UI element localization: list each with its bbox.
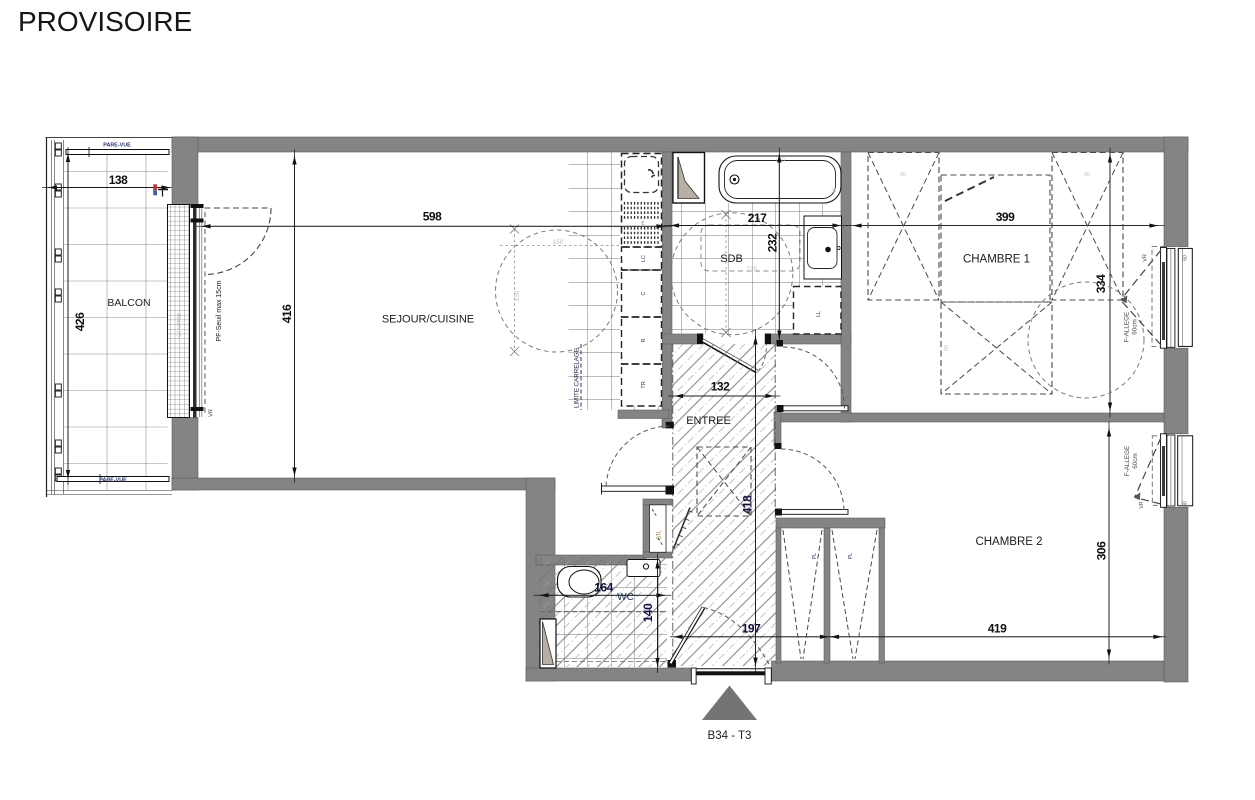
svg-text:LIMITE CARRELAGE: LIMITE CARRELAGE	[574, 348, 581, 408]
svg-text:R: R	[641, 338, 647, 342]
svg-text:F-ALLEGE: F-ALLEGE	[1124, 446, 1131, 476]
svg-text:90: 90	[1084, 172, 1090, 178]
svg-text:232: 232	[766, 233, 780, 252]
svg-text:VR: VR	[1143, 254, 1149, 262]
svg-text:ENTREE: ENTREE	[686, 415, 731, 427]
svg-text:138: 138	[109, 173, 128, 187]
svg-text:F-ALLEGE: F-ALLEGE	[1124, 312, 1131, 342]
svg-text:416: 416	[280, 304, 294, 323]
svg-text:60: 60	[1183, 255, 1189, 261]
svg-text:90: 90	[944, 345, 950, 351]
svg-text:GTL: GTL	[657, 530, 663, 540]
svg-text:140: 140	[641, 603, 655, 622]
svg-text:PL: PL	[848, 553, 854, 559]
svg-text:TR: TR	[641, 381, 647, 388]
svg-text:VR: VR	[209, 409, 215, 417]
svg-text:150: 150	[553, 239, 564, 246]
svg-text:197: 197	[742, 622, 761, 636]
svg-text:426: 426	[73, 312, 87, 331]
svg-text:217: 217	[748, 211, 767, 225]
svg-text:164: 164	[594, 581, 613, 595]
svg-text:419: 419	[988, 622, 1007, 636]
svg-text:132: 132	[711, 380, 730, 394]
svg-text:PF-Seuil max 15cm: PF-Seuil max 15cm	[216, 280, 223, 341]
svg-text:60cm: 60cm	[1132, 453, 1139, 468]
svg-text:598: 598	[423, 210, 442, 224]
svg-text:WC: WC	[617, 592, 634, 603]
svg-text:GC VITREE: GC VITREE	[177, 313, 182, 337]
svg-text:PROVISOIRE: PROVISOIRE	[18, 6, 192, 37]
svg-text:PARE-VUE: PARE-VUE	[99, 477, 127, 483]
svg-text:SDB: SDB	[720, 253, 743, 265]
svg-text:LL: LL	[816, 311, 822, 317]
svg-text:60: 60	[1183, 501, 1189, 507]
svg-text:E: E	[641, 221, 644, 226]
svg-text:C: C	[641, 291, 647, 295]
svg-text:135: 135	[747, 267, 758, 273]
svg-text:LC: LC	[641, 255, 647, 262]
svg-text:334: 334	[1094, 274, 1108, 293]
svg-text:CHAMBRE 2: CHAMBRE 2	[975, 536, 1042, 548]
svg-text:90: 90	[900, 172, 906, 178]
svg-text:60cm: 60cm	[1132, 319, 1139, 334]
svg-text:VR: VR	[1139, 501, 1145, 508]
svg-text:120: 120	[775, 158, 786, 164]
svg-text:B34 - T3: B34 - T3	[708, 730, 752, 742]
svg-text:PARE-VUE: PARE-VUE	[103, 143, 131, 149]
svg-text:CHAMBRE 1: CHAMBRE 1	[963, 254, 1030, 266]
svg-text:150: 150	[514, 290, 521, 301]
svg-text:W: W	[832, 187, 838, 193]
svg-text:BALCON: BALCON	[107, 297, 150, 309]
svg-text:306: 306	[1095, 541, 1109, 560]
svg-text:399: 399	[996, 210, 1015, 224]
svg-text:PL: PL	[812, 553, 818, 559]
svg-text:SEJOUR/CUISINE: SEJOUR/CUISINE	[382, 314, 474, 326]
